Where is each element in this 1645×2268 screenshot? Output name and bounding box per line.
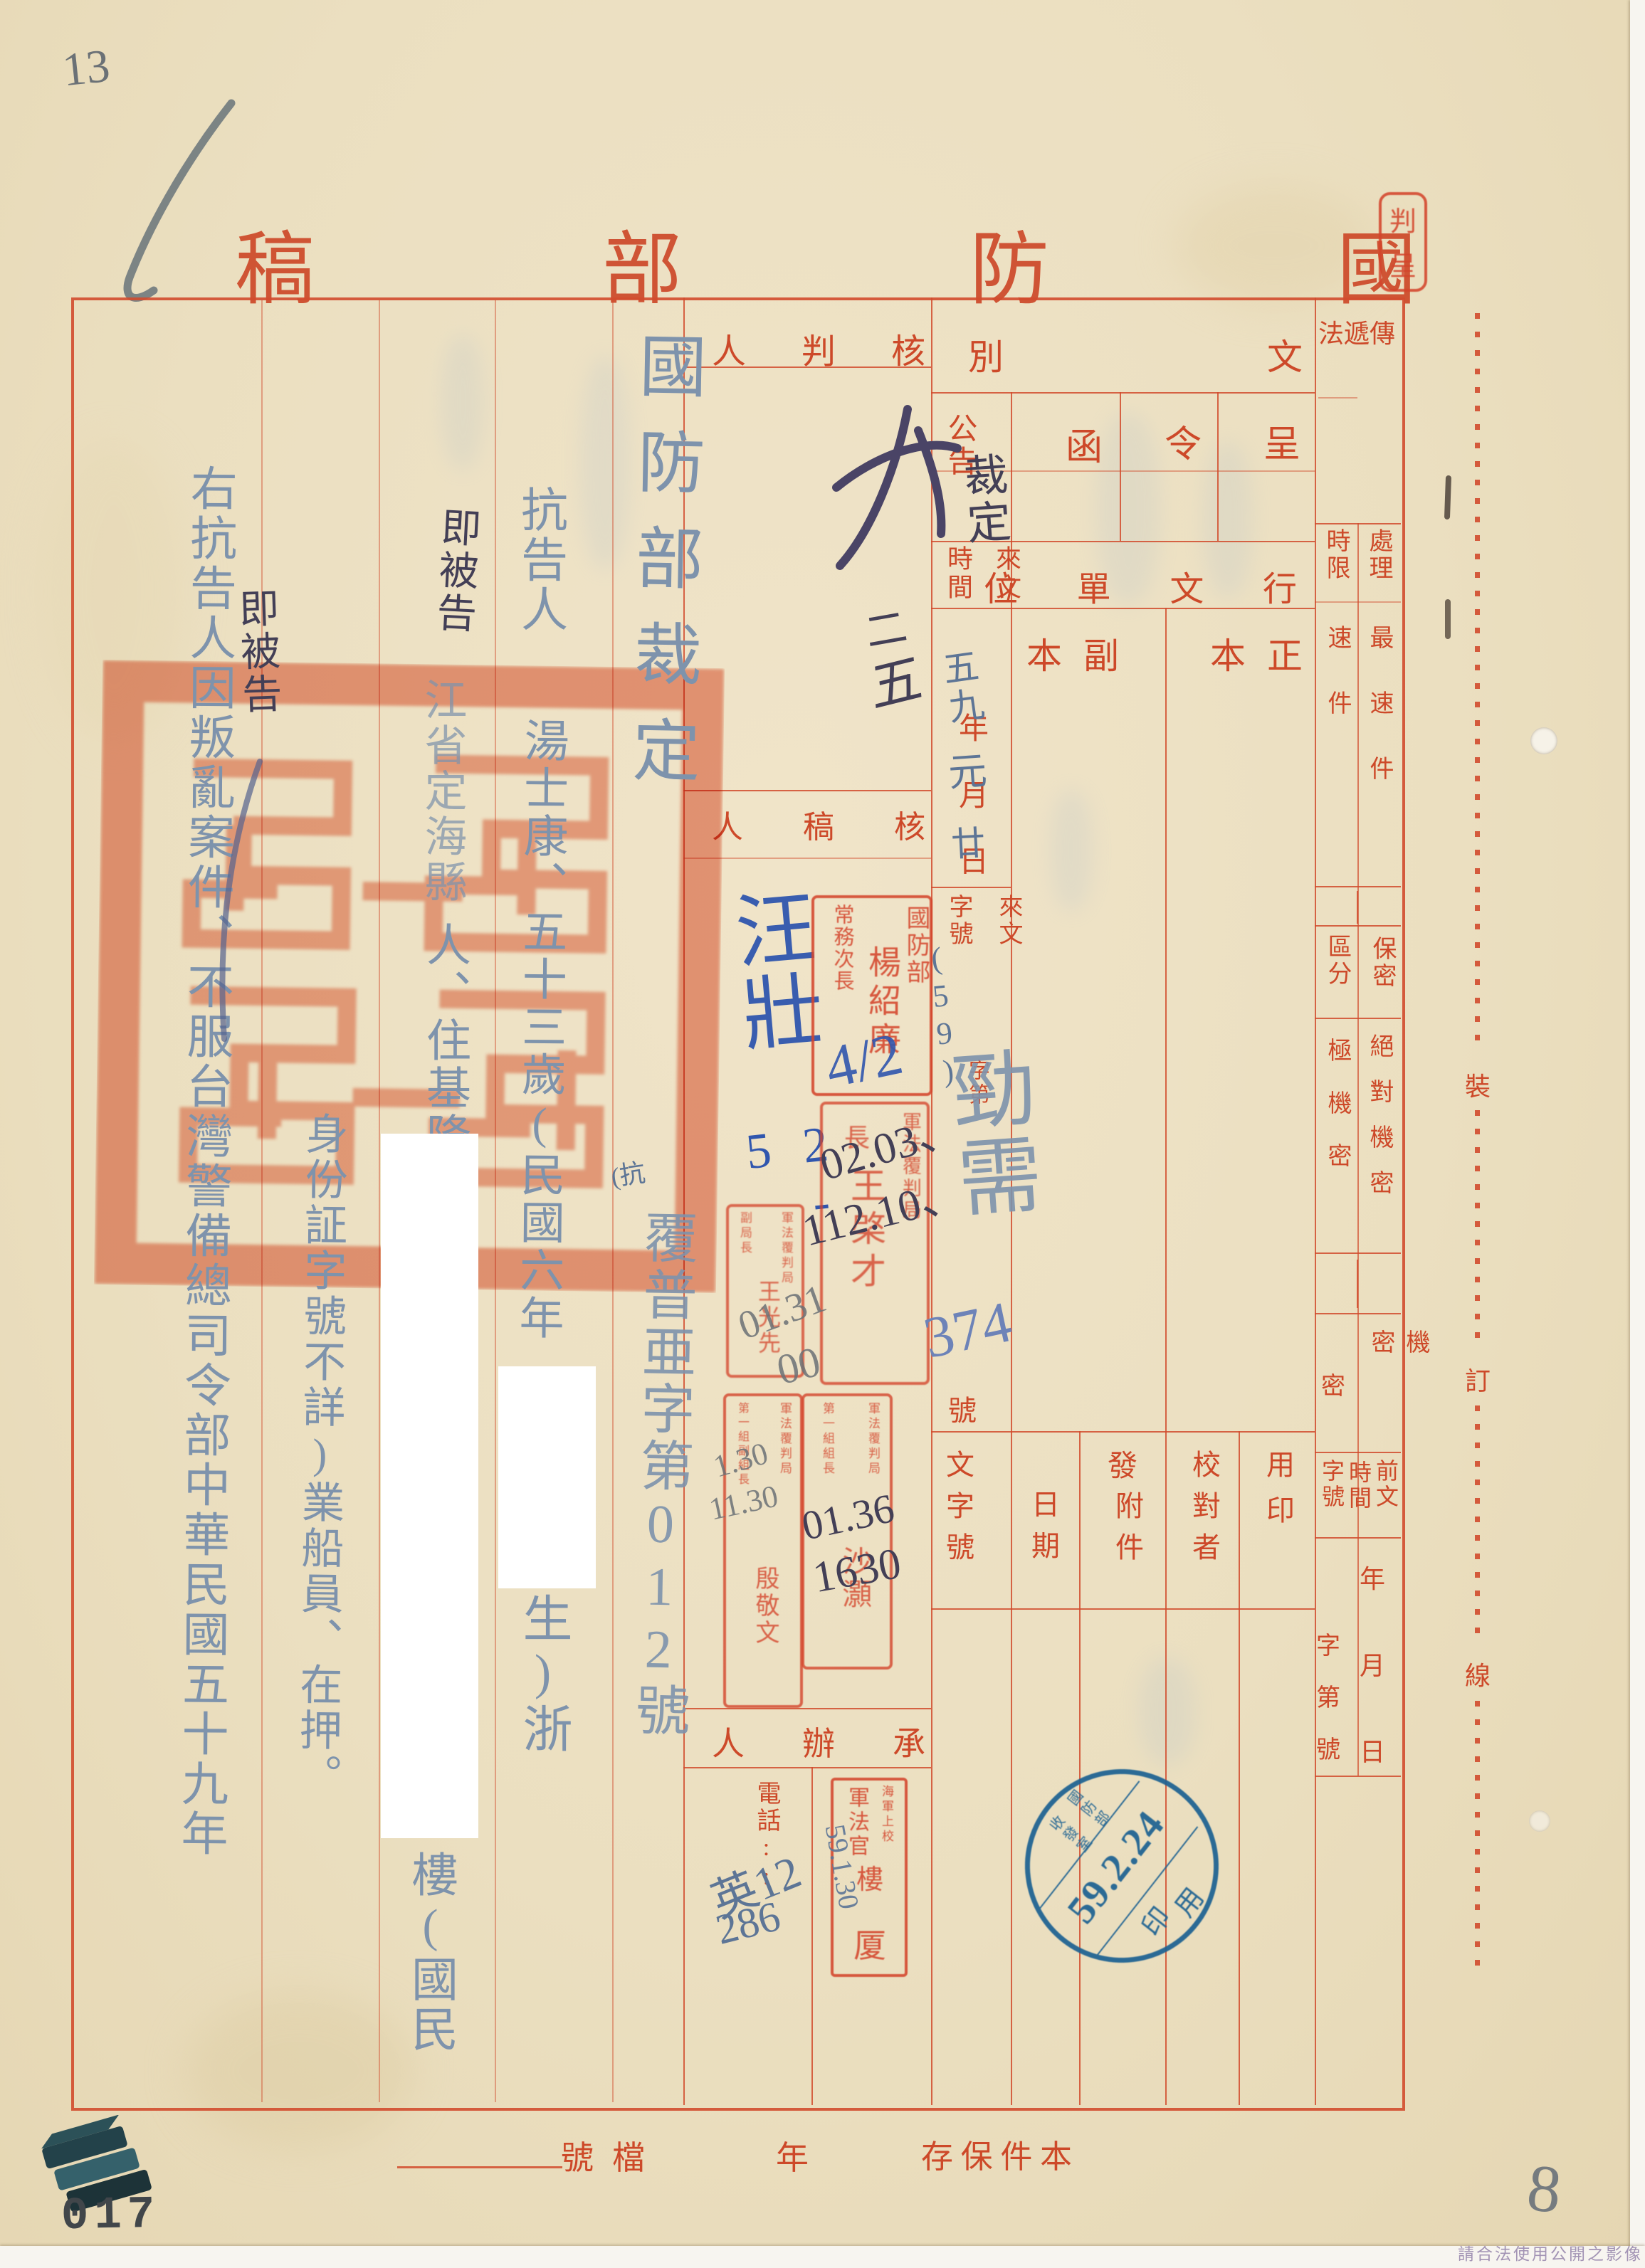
date-year-hw: 五九 — [930, 646, 992, 731]
body-c2-person: 湯士康、五十三歲(民國六年 — [505, 717, 576, 1369]
pencil-page-number: 8 — [1523, 2149, 1565, 2229]
fill-in-line — [397, 2166, 562, 2168]
doc-type-handwritten: 裁定 — [947, 450, 1019, 561]
label-wenbie: 文別 — [968, 329, 1303, 380]
binding-dotted-line — [1475, 1701, 1480, 1971]
form-line — [1315, 1452, 1401, 1453]
form-line — [683, 1767, 931, 1768]
form-line — [931, 887, 1011, 888]
annotation-jibeigao-2: 即被告 — [226, 587, 290, 771]
label-laiwen2: 來文 — [991, 894, 1026, 948]
laiwen-no-chars: 勁需 — [922, 1042, 1060, 1285]
form-line — [683, 1708, 931, 1709]
binding-label-zhuang: 裝 — [1465, 1066, 1491, 1103]
binding-dotted-line — [1475, 1110, 1480, 1345]
label-zidihao: 字第號 — [1314, 1626, 1342, 1765]
body-c3-c: 樓(國民 — [396, 1850, 464, 2096]
label-riqi: 日期 — [1031, 1482, 1061, 1550]
form-line — [1315, 1537, 1401, 1539]
label-yongyin: 用印 — [1266, 1442, 1295, 1529]
punch-hole — [1530, 727, 1557, 754]
label-zihao2: 字號 — [1315, 1459, 1348, 1510]
label-cheng: 呈 — [1263, 414, 1300, 468]
label-xingwen-danwei: 行文單位 — [984, 561, 1297, 611]
body-c2-tail: 生)浙 — [507, 1593, 579, 1827]
form-line — [1315, 1313, 1401, 1314]
form-line — [1315, 886, 1401, 887]
binding-dotted-line — [1475, 313, 1480, 1053]
form-line — [931, 392, 1315, 394]
label-han: 函 — [1066, 417, 1103, 470]
form-line — [1079, 1431, 1081, 2105]
body-c3-a: 江省定海縣 — [411, 677, 473, 923]
form-line — [1120, 392, 1121, 541]
label-jimi: 機密 — [1363, 1329, 1433, 1425]
panfeng-stamp: 判呈 — [1379, 192, 1427, 292]
usage-watermark: 請合法使用公開之影像 — [1417, 2240, 1643, 2264]
staple-mark — [1444, 475, 1451, 519]
form-dash — [1357, 891, 1358, 924]
form-line — [1315, 1252, 1401, 1254]
approval-date-part2: 五 — [866, 634, 925, 723]
body-c4: 身份証字號不詳)業船員、在押。 — [285, 1112, 355, 1835]
label-hao: 號 — [948, 1388, 977, 1429]
label-hepanren: 核判人 — [712, 323, 925, 373]
pencil-mark-2 — [85, 85, 256, 320]
binding-label-xian: 線 — [1465, 1655, 1491, 1692]
form-line — [1318, 397, 1357, 399]
form-line — [931, 1608, 1315, 1610]
label-juedui-jimi: 絕對機密 — [1362, 1033, 1397, 1243]
form-line — [1315, 1776, 1401, 1777]
ink-flourish — [192, 754, 278, 1053]
annotation-jibeigao: 即被告 — [421, 505, 488, 672]
label-ymd-right: 年月日 — [1358, 1558, 1387, 1768]
scan-edge-right — [1630, 0, 1645, 2268]
label-mi: 密 — [1321, 1366, 1345, 1401]
body-line-caseno: 覆普亜字第012號 — [617, 1209, 705, 1751]
form-line — [1315, 523, 1401, 524]
label-nian-bottom: 年 — [776, 2132, 809, 2179]
body-c2-role: 抗告人 — [505, 485, 574, 638]
form-line — [931, 1431, 1315, 1433]
label-fuben: 副本 — [1026, 628, 1119, 679]
label-sujian: 速件 — [1320, 625, 1355, 803]
label-fa: 發 — [1108, 1442, 1137, 1485]
form-line — [1239, 1431, 1240, 2105]
scan-edge-bottom — [0, 2246, 1645, 2268]
label-fujian: 附件 — [1115, 1483, 1145, 1551]
binding-label-ding: 訂 — [1465, 1361, 1491, 1398]
date-month-hw: 元 — [946, 739, 988, 798]
form-line — [811, 1767, 813, 2105]
form-line — [1315, 297, 1316, 2105]
label-chuandifa: 傳遞法 — [1318, 313, 1395, 350]
label-danghao: 檔號 — [561, 2132, 645, 2179]
label-baomi: 保密 — [1365, 936, 1399, 990]
label-zhengben: 正本 — [1210, 628, 1303, 679]
scanned-document-page: { "corner_notes": { "pencil_1": "13", "p… — [0, 0, 1645, 2268]
label-qufen: 區分 — [1320, 934, 1355, 988]
form-dash — [1357, 1260, 1358, 1308]
label-hegaoren: 核稿人 — [712, 801, 925, 847]
annotation-kang: (抗 — [609, 1152, 648, 1193]
label-jiaoduizhe: 校對者 — [1192, 1442, 1221, 1550]
label-benjian-baocun: 本件保存 — [921, 2131, 1072, 2177]
label-chengbanren: 承辦人 — [712, 1718, 925, 1765]
redaction-box-2 — [498, 1366, 596, 1588]
form-line — [1315, 601, 1401, 603]
punch-hole — [1529, 1810, 1550, 1832]
form-line — [1315, 925, 1401, 927]
label-chuli: 處理 — [1361, 528, 1396, 582]
label-ji-jimi: 極機密 — [1320, 1038, 1355, 1219]
body-line-title: 國防部裁定 — [611, 330, 717, 816]
redaction-box-1 — [381, 1134, 478, 1838]
form-line — [1217, 392, 1219, 541]
label-ling: 令 — [1165, 414, 1202, 468]
archive-page-number: 017 — [61, 2190, 160, 2242]
binding-dotted-line — [1475, 1405, 1480, 1640]
staple-mark — [1445, 599, 1451, 639]
label-zuisujian: 最速件 — [1362, 625, 1397, 845]
label-shixian: 時限 — [1318, 528, 1353, 582]
label-fawen-zihao: 文字號 — [945, 1442, 975, 1549]
date-day-hw: 廿 — [950, 815, 987, 866]
form-line — [1315, 1018, 1401, 1019]
